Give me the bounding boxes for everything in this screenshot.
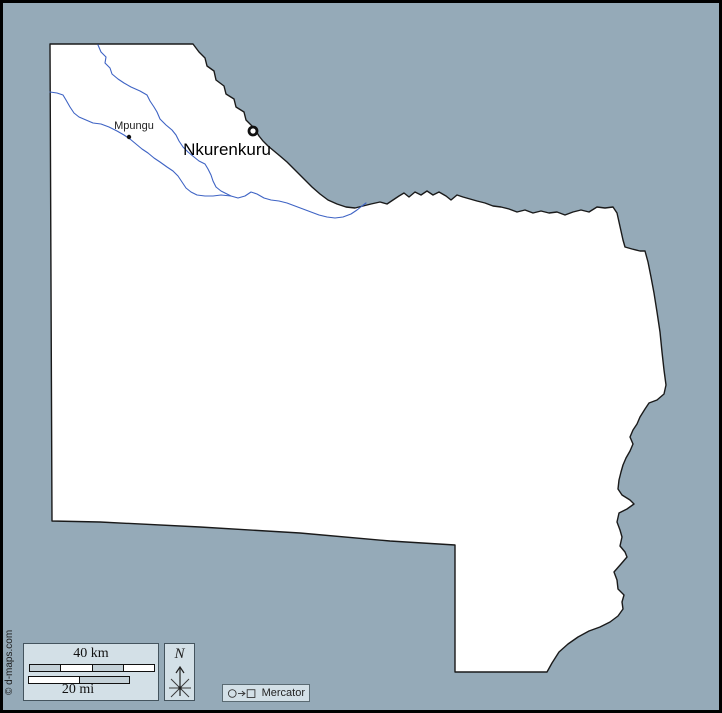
town-marker	[127, 135, 131, 139]
compass-rose-icon	[167, 662, 193, 700]
capital-label: Nkurenkuru	[183, 140, 271, 160]
compass-north-label: N	[165, 646, 194, 662]
scale-mi-label: 20 mi	[28, 683, 128, 697]
km-bar-segment	[93, 665, 124, 671]
projection-label: Mercator	[262, 688, 305, 699]
scale-bar-panel: 40 km 20 mi	[23, 643, 159, 701]
projection-badge: Mercator	[222, 684, 310, 702]
map-drawing	[0, 0, 722, 713]
km-scale-bar	[29, 664, 155, 672]
km-bar-segment	[61, 665, 92, 671]
scale-km-label: 40 km	[24, 647, 158, 661]
km-bar-segment	[30, 665, 61, 671]
km-bar-segment	[124, 665, 154, 671]
compass-panel: N	[164, 643, 195, 701]
copyright-watermark: © d-maps.com	[4, 630, 15, 695]
region-outline	[50, 44, 666, 672]
circle-to-square-icon	[227, 687, 259, 700]
town-label: Mpungu	[114, 120, 154, 132]
map-canvas: Mpungu Nkurenkuru 40 km 20 mi N	[0, 0, 722, 713]
capital-marker	[249, 127, 257, 135]
